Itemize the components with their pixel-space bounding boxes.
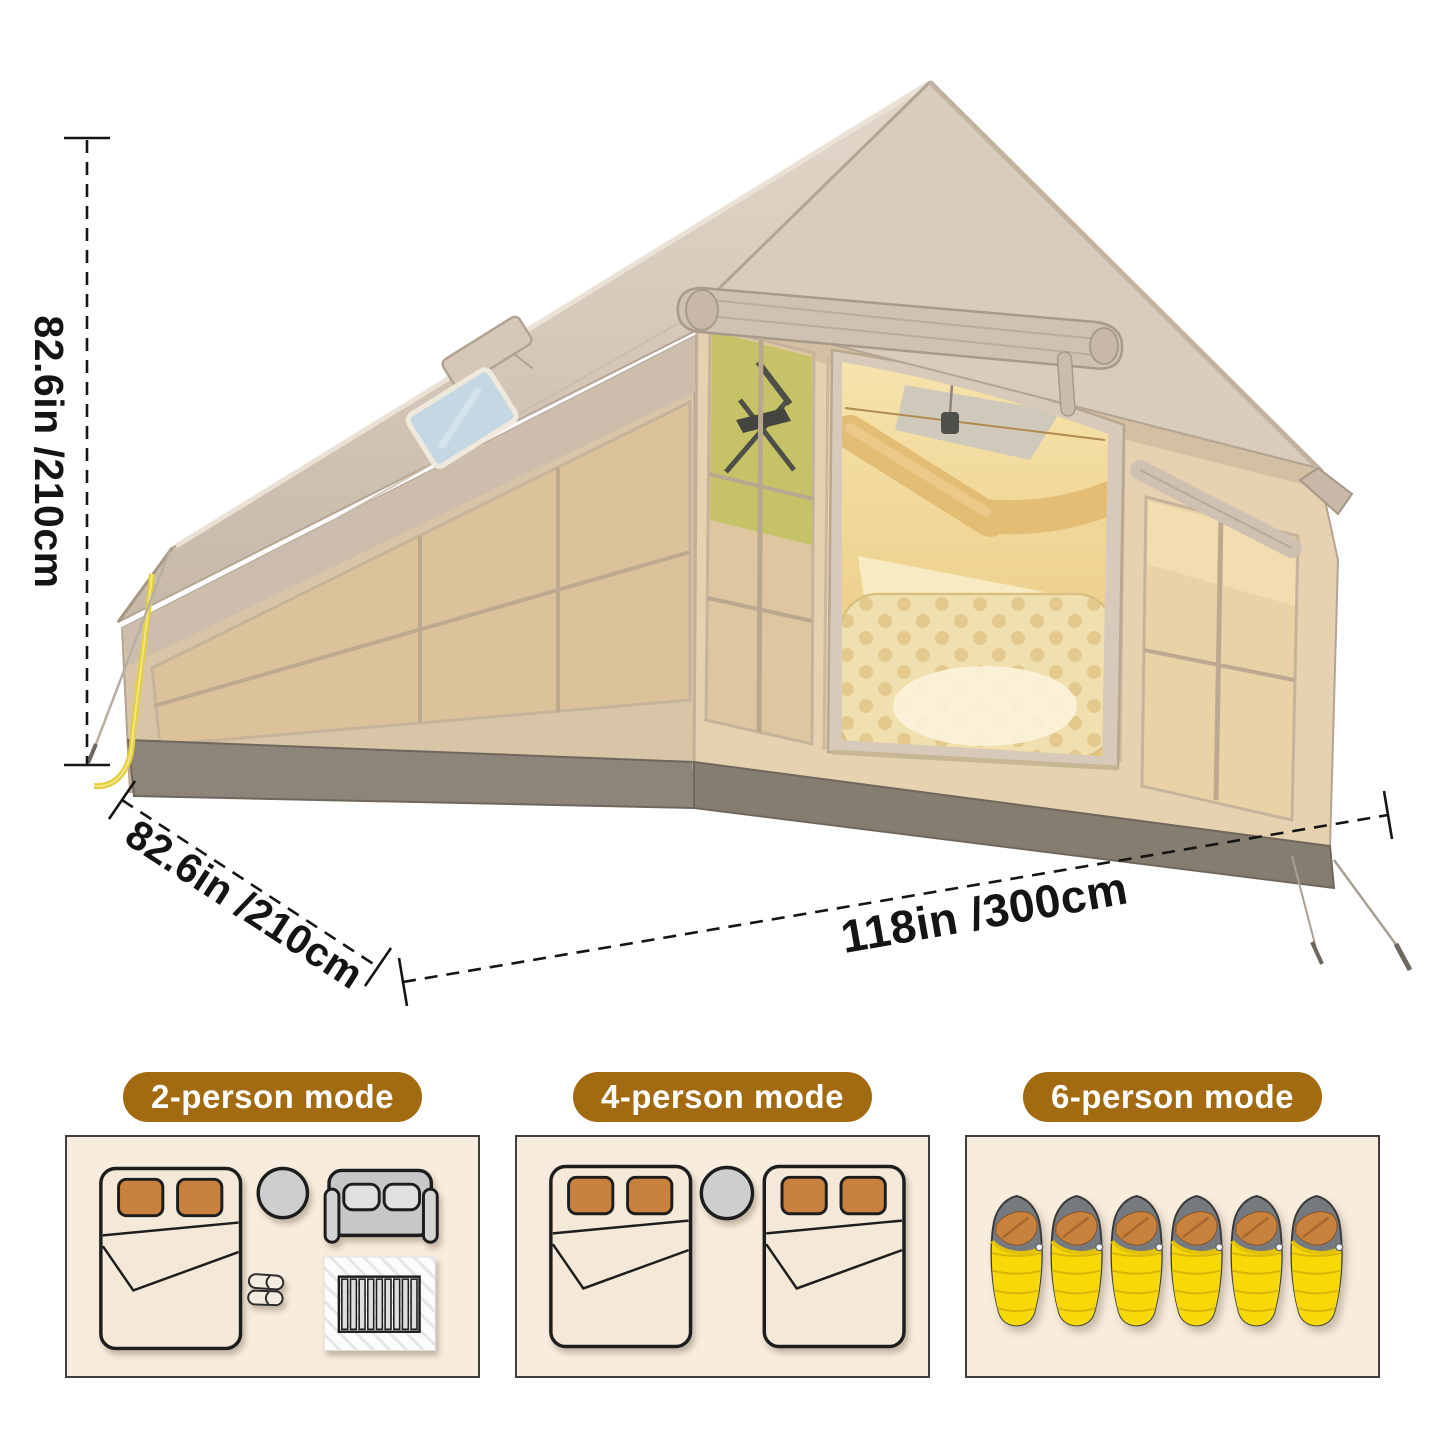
rug-icon <box>324 1257 435 1350</box>
double-bed-icon <box>764 1167 904 1347</box>
height-dimension-label: 82.6in /210cm <box>26 315 72 588</box>
height-dimension-line: 82.6in /210cm <box>26 138 110 765</box>
sleeping-bag-icon <box>1291 1196 1342 1325</box>
length-dimension-label: 118in /300cm <box>837 861 1132 963</box>
air-mattress <box>840 594 1114 758</box>
sleeping-bag-icon <box>991 1196 1042 1325</box>
depth-dimension-label: 82.6in /210cm <box>118 811 372 998</box>
product-infographic: 82.6in /210cm 82.6in /210cm 118in /300cm… <box>0 0 1445 1445</box>
slippers-icon <box>248 1274 284 1306</box>
sleeping-bag-icon <box>1231 1196 1282 1325</box>
sleeping-bag-icon <box>1051 1196 1102 1325</box>
double-bed-icon <box>101 1168 241 1348</box>
round-table-icon <box>701 1167 752 1218</box>
mode-floorplan-2person <box>65 1135 480 1378</box>
mode-floorplan-6person <box>965 1135 1380 1378</box>
capacity-modes: 2-person mode <box>0 1072 1445 1378</box>
sleeping-bag-icon <box>1111 1196 1162 1325</box>
door-opening <box>828 350 1124 768</box>
double-bed-icon <box>551 1167 691 1347</box>
front-left-window <box>706 327 814 744</box>
tent-illustration: 82.6in /210cm 82.6in /210cm 118in /300cm <box>0 0 1445 1050</box>
sleeping-bag-icon <box>1171 1196 1222 1325</box>
mode-badge-4person: 4-person mode <box>573 1072 872 1122</box>
tent-photo <box>88 82 1410 970</box>
mode-badge-6person: 6-person mode <box>1023 1072 1322 1122</box>
mode-badge-2person: 2-person mode <box>123 1072 422 1122</box>
mode-floorplan-4person <box>515 1135 930 1378</box>
round-table-icon <box>258 1168 307 1217</box>
mode-panel-4person: 4-person mode <box>515 1072 930 1378</box>
depth-dimension-line: 82.6in /210cm <box>109 781 391 998</box>
mode-panel-2person: 2-person mode <box>65 1072 480 1378</box>
sofa-icon <box>325 1170 437 1242</box>
mode-panel-6person: 6-person mode <box>965 1072 1380 1378</box>
